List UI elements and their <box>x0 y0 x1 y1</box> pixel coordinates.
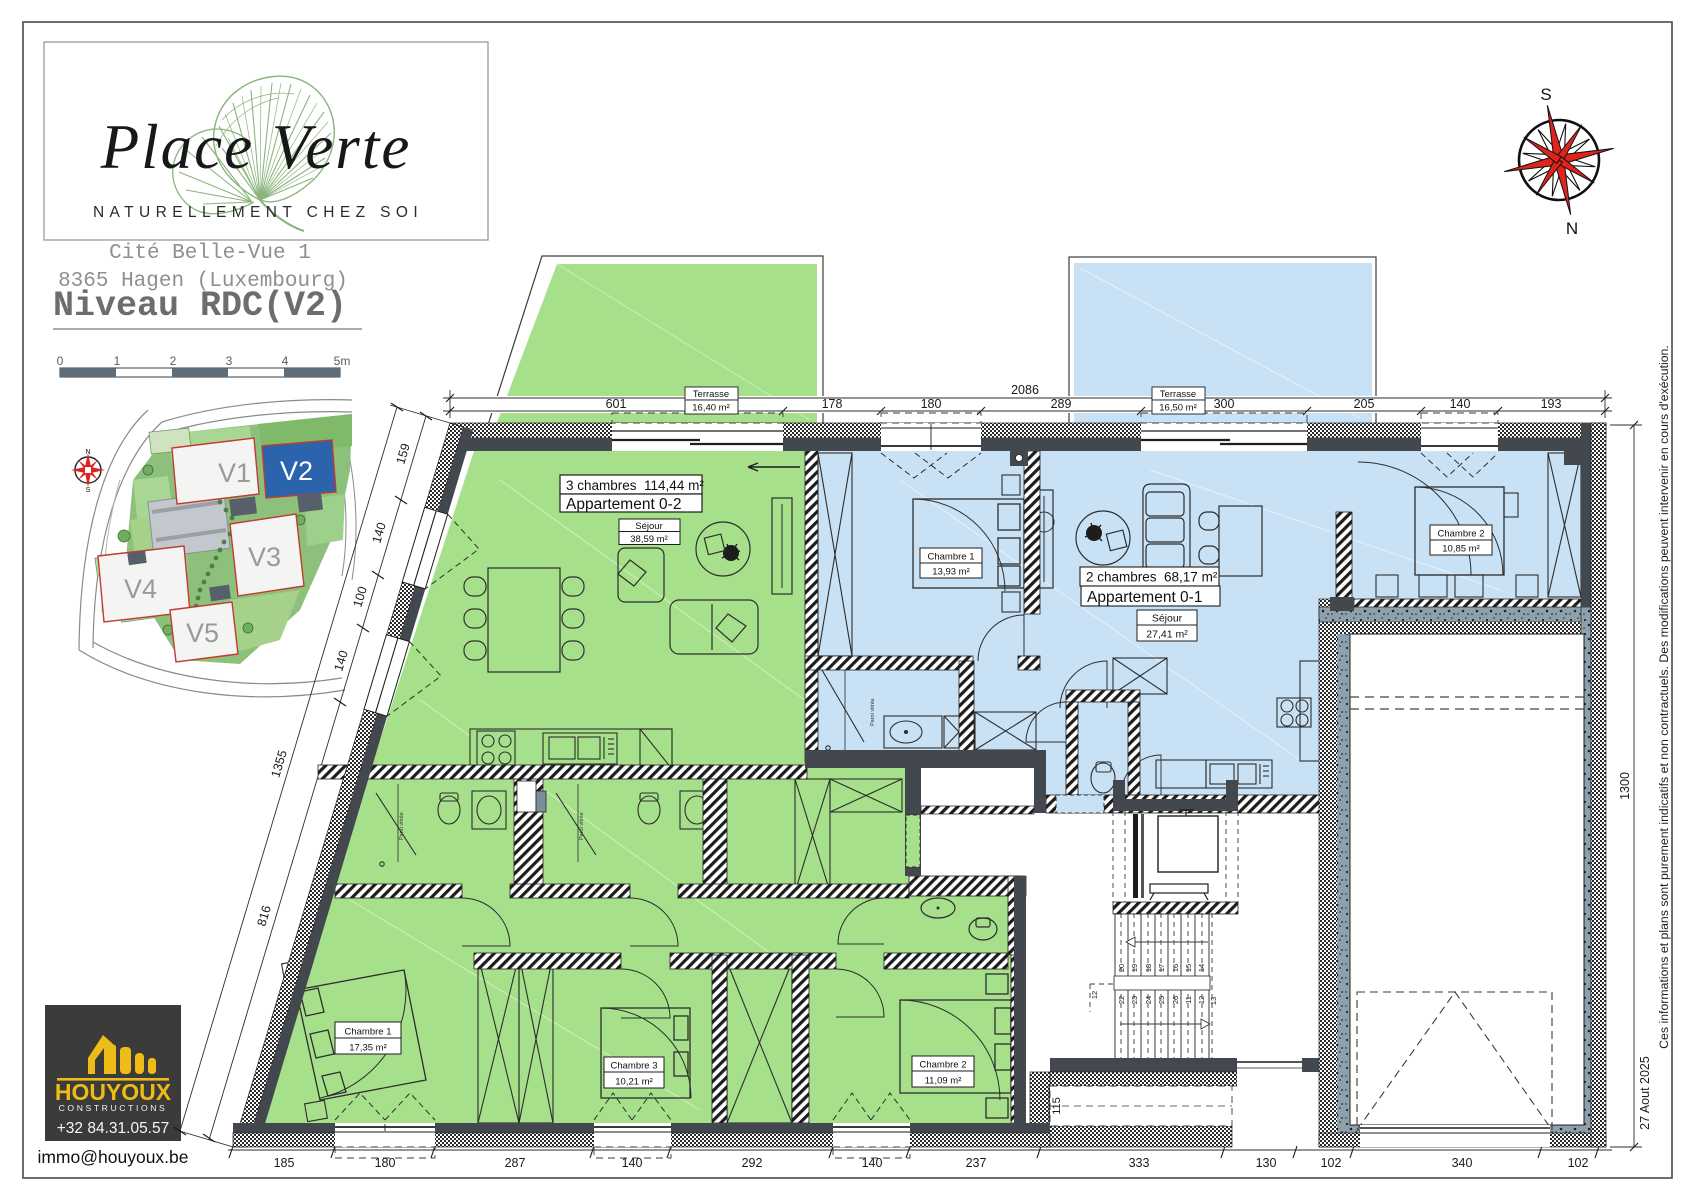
svg-text:V5: V5 <box>186 618 219 648</box>
svg-text:NATURELLEMENT CHEZ SOI: NATURELLEMENT CHEZ SOI <box>93 204 423 221</box>
svg-text:Terrasse: Terrasse <box>1160 389 1196 400</box>
svg-text:237: 237 <box>966 1156 987 1170</box>
svg-text:205: 205 <box>1354 397 1375 411</box>
svg-text:178: 178 <box>822 397 843 411</box>
svg-text:4: 4 <box>282 354 289 368</box>
svg-text:immo@houyoux.be: immo@houyoux.be <box>37 1147 188 1167</box>
svg-text:2: 2 <box>170 354 177 368</box>
svg-text:Appartement 0-1: Appartement 0-1 <box>1087 589 1202 606</box>
svg-text:Terrasse: Terrasse <box>693 389 729 400</box>
svg-text:+32 84.31.05.57: +32 84.31.05.57 <box>57 1120 169 1137</box>
svg-text:601: 601 <box>606 397 627 411</box>
svg-text:13: 13 <box>1209 997 1218 1005</box>
svg-text:180: 180 <box>921 397 942 411</box>
svg-text:0: 0 <box>57 354 64 368</box>
svg-text:16,40 m²: 16,40 m² <box>692 403 730 414</box>
svg-text:10,85 m²: 10,85 m² <box>1442 544 1480 555</box>
svg-text:38,59 m²: 38,59 m² <box>630 534 668 545</box>
svg-text:340: 340 <box>1452 1156 1473 1170</box>
svg-text:17: 17 <box>1157 964 1166 972</box>
svg-text:26: 26 <box>1171 996 1180 1004</box>
svg-text:289: 289 <box>1051 397 1072 411</box>
svg-text:Séjour: Séjour <box>1152 613 1183 625</box>
svg-text:193: 193 <box>1541 397 1562 411</box>
svg-text:Chambre 2: Chambre 2 <box>1438 529 1485 540</box>
svg-text:19: 19 <box>1130 964 1139 972</box>
svg-text:300: 300 <box>1214 397 1235 411</box>
svg-text:333: 333 <box>1129 1156 1150 1170</box>
svg-text:11,09 m²: 11,09 m² <box>925 1076 962 1087</box>
svg-text:Séjour: Séjour <box>635 521 662 532</box>
svg-text:V3: V3 <box>248 542 281 572</box>
svg-text:Place Verte: Place Verte <box>100 112 412 182</box>
svg-text:N: N <box>1566 219 1578 238</box>
svg-text:2 chambres 68,17 m²: 2 chambres 68,17 m² <box>1086 570 1218 585</box>
svg-text:292: 292 <box>742 1156 763 1170</box>
svg-text:N: N <box>85 449 90 456</box>
svg-text:18: 18 <box>1144 964 1153 972</box>
svg-text:20: 20 <box>1117 964 1126 972</box>
svg-text:Chambre 2: Chambre 2 <box>920 1060 967 1071</box>
svg-text:185: 185 <box>274 1156 295 1170</box>
svg-text:3 chambres 114,44 m²: 3 chambres 114,44 m² <box>566 478 704 493</box>
svg-text:287: 287 <box>505 1156 526 1170</box>
svg-text:Chambre 3: Chambre 3 <box>611 1061 658 1072</box>
svg-text:Appartement 0-2: Appartement 0-2 <box>566 496 681 513</box>
svg-text:3: 3 <box>226 354 233 368</box>
svg-text:V2: V2 <box>280 456 313 486</box>
svg-text:1: 1 <box>114 354 121 368</box>
svg-text:16,50 m²: 16,50 m² <box>1159 403 1197 414</box>
svg-text:Chambre 1: Chambre 1 <box>345 1027 392 1038</box>
svg-text:102: 102 <box>1568 1156 1589 1170</box>
svg-text:12: 12 <box>1090 991 1099 999</box>
svg-text:23: 23 <box>1130 996 1139 1004</box>
svg-text:13,93 m²: 13,93 m² <box>932 567 970 578</box>
svg-text:12: 12 <box>1197 996 1206 1004</box>
svg-text:CONSTRUCTIONS: CONSTRUCTIONS <box>59 1103 168 1113</box>
svg-text:Paroi vitrée: Paroi vitrée <box>399 812 405 840</box>
svg-text:2086: 2086 <box>1011 383 1039 397</box>
svg-text:Paroi vitrée: Paroi vitrée <box>870 698 876 726</box>
svg-text:V4: V4 <box>124 574 157 604</box>
svg-text:27 Aout 2025: 27 Aout 2025 <box>1638 1056 1652 1130</box>
svg-text:1300: 1300 <box>1618 772 1632 800</box>
svg-text:22: 22 <box>1117 996 1126 1004</box>
svg-text:16: 16 <box>1171 964 1180 972</box>
svg-text:140: 140 <box>1450 397 1471 411</box>
svg-text:130: 130 <box>1256 1156 1277 1170</box>
svg-text:Cité Belle-Vue 1: Cité Belle-Vue 1 <box>109 242 311 265</box>
svg-text:5m: 5m <box>334 354 351 368</box>
svg-text:102: 102 <box>1321 1156 1342 1170</box>
svg-text:V1: V1 <box>218 458 251 488</box>
svg-text:10,21 m²: 10,21 m² <box>615 1077 653 1088</box>
svg-text:S: S <box>1540 85 1551 104</box>
svg-text:Ces informations et plans sont: Ces informations et plans sont purement … <box>1657 345 1671 1049</box>
svg-text:Chambre 1: Chambre 1 <box>928 552 975 563</box>
svg-text:15: 15 <box>1184 964 1193 972</box>
svg-text:S: S <box>86 487 91 494</box>
svg-text:11: 11 <box>1184 996 1193 1004</box>
svg-text:24: 24 <box>1144 996 1153 1004</box>
svg-text:HOUYOUX: HOUYOUX <box>55 1079 172 1105</box>
svg-text:14: 14 <box>1197 964 1206 972</box>
svg-text:115: 115 <box>1051 1097 1063 1115</box>
svg-text:17,35 m²: 17,35 m² <box>349 1043 387 1054</box>
svg-text:Paroi vitrée: Paroi vitrée <box>579 812 585 840</box>
svg-text:27,41 m²: 27,41 m² <box>1146 629 1188 641</box>
svg-text:25: 25 <box>1157 996 1166 1004</box>
svg-text:Niveau RDC(V2): Niveau RDC(V2) <box>53 286 347 326</box>
